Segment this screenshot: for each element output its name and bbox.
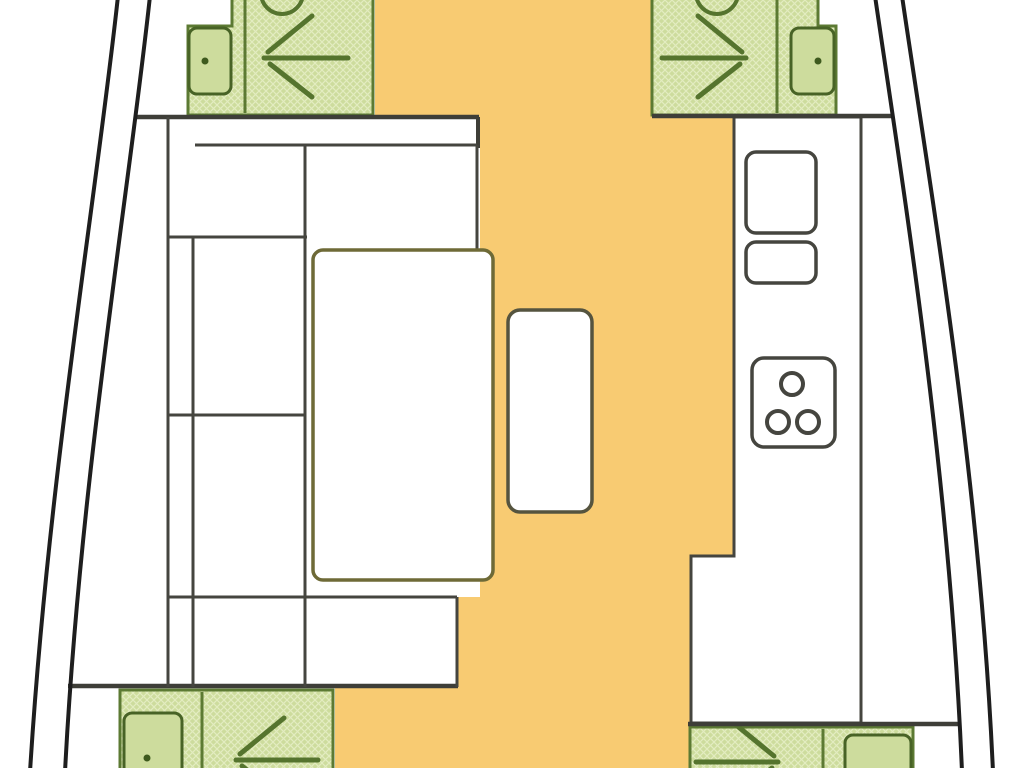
galley-sink-large [746,152,816,233]
stove-burner-top [781,373,803,395]
door-knob-dot-forward-starboard [815,58,822,65]
door-knob-dot-aft-port [144,755,151,762]
stove-burner-right [797,411,819,433]
floorplan-scene [30,0,993,768]
door-aft-port [124,713,182,768]
galley-sink-small [746,242,816,283]
sofa-top-seat [168,145,477,251]
floorplan-canvas [0,0,1024,768]
hull-line-starboard-outer [902,0,993,768]
door-aft-starboard [845,735,911,768]
hull-line-port-inner [65,0,150,768]
saloon-side-table [508,310,592,512]
saloon-table [313,250,493,580]
door-forward-port [189,28,231,94]
door-forward-starboard [791,28,834,94]
door-knob-dot-forward-port [202,58,209,65]
stove-burner-left [767,411,789,433]
floorplan-svg [0,0,1024,768]
